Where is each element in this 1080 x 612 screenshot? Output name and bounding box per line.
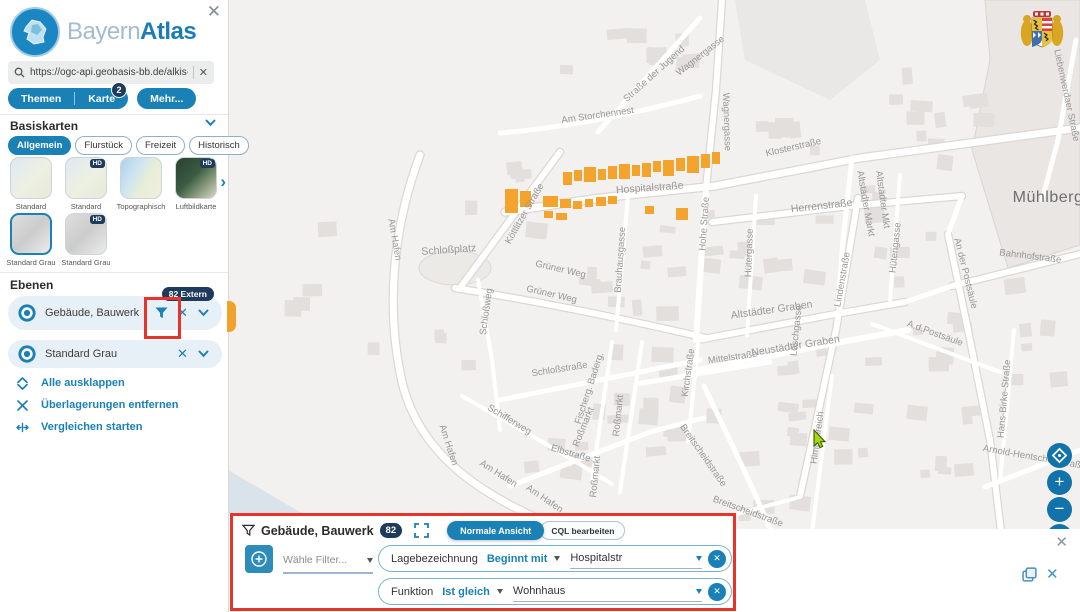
- chevron-down-icon: [198, 350, 209, 358]
- choose-filter-placeholder: Wähle Filter...: [283, 554, 360, 566]
- street-label: Wagnergasse: [720, 93, 733, 152]
- sidebar-close-icon[interactable]: ✕: [207, 2, 221, 22]
- basemap-thumb-standard-grau[interactable]: HDStandard Grau: [63, 213, 109, 267]
- sidebar: ✕ BayernAtlas https://ogc-api.geobasis-b…: [0, 0, 229, 612]
- basemap-chip-freizeit[interactable]: Freizeit: [136, 136, 185, 155]
- minus-icon: −: [1055, 499, 1065, 519]
- remove-overlays-icon: [12, 399, 32, 412]
- search-bar[interactable]: https://ogc-api.geobasis-bb.de/alkis-ver…: [8, 61, 214, 84]
- expand-all-icon: [12, 377, 32, 390]
- expand-brackets-icon: [414, 523, 429, 538]
- sidebar-drawer-handle[interactable]: [227, 301, 236, 332]
- view-toggle: Normale AnsichtCQL bearbeiten: [447, 521, 625, 540]
- filter-rows: LagebezeichnungBeginnt mitHospitalstr✕Fu…: [378, 545, 732, 611]
- basemap-thumb-label: Luftbildkarte: [176, 202, 217, 211]
- toggle-cql-bearbeiten[interactable]: CQL bearbeiten: [540, 521, 625, 540]
- action-compare[interactable]: Vergleichen starten: [12, 416, 179, 438]
- basemap-thumb-image: HD: [175, 157, 217, 199]
- bottom-strip-close-icon[interactable]: ✕: [1055, 533, 1068, 551]
- basemap-chips: AllgemeinFlurstückFreizeitHistorisch: [8, 136, 249, 155]
- basemap-thumb-label: Standard: [16, 202, 46, 211]
- filter-outline-icon: [242, 524, 255, 537]
- filter-row-0: LagebezeichnungBeginnt mitHospitalstr✕: [378, 545, 732, 572]
- chevron-down-icon: [198, 309, 209, 317]
- action-expand-all[interactable]: Alle ausklappen: [12, 372, 179, 394]
- filter-panel-title: Gebäude, Bauwerk: [261, 524, 374, 538]
- search-divider: [193, 66, 194, 79]
- compare-icon: [12, 421, 32, 434]
- plus-icon: +: [1055, 472, 1065, 492]
- filter-operator-dropdown[interactable]: Ist gleich: [442, 586, 490, 598]
- expand-all-icon: [16, 377, 29, 390]
- chevron-down-icon[interactable]: [205, 119, 216, 127]
- compare-close-icon[interactable]: ✕: [1046, 565, 1059, 583]
- basemap-thumb-standard[interactable]: Standard: [8, 157, 54, 211]
- plus-circle-icon: [250, 550, 268, 568]
- filter-value-text: Wohnhaus: [513, 585, 689, 597]
- basiskarten-title: Basiskarten: [10, 119, 78, 133]
- basemap-thumb-luftbildkarte[interactable]: HDLuftbildkarte: [173, 157, 219, 211]
- layer-row-0[interactable]: Gebäude, Bauwerk✕82 Extern: [8, 296, 222, 330]
- bavaria-coat-of-arms: [1020, 6, 1064, 54]
- layer-row-1[interactable]: Standard Grau✕: [8, 340, 222, 368]
- filter-value-dropdown[interactable]: Wohnhaus: [513, 581, 702, 602]
- filter-field-label: Lagebezeichnung: [391, 553, 478, 565]
- layer-label: Gebäude, Bauwerk: [45, 307, 139, 319]
- hd-badge: HD: [200, 159, 215, 168]
- basemap-thumb-label: Standard Grau: [6, 258, 55, 267]
- zoom-in-button[interactable]: +: [1047, 470, 1072, 495]
- basemap-chip-flurstück[interactable]: Flurstück: [75, 136, 132, 155]
- chevron-down-icon: [696, 556, 702, 561]
- basemap-thumb-image: [120, 157, 162, 199]
- filter-remove-button[interactable]: ✕: [708, 583, 726, 601]
- basemap-thumb-image: HD: [65, 157, 107, 199]
- chevron-down-icon: [696, 589, 702, 594]
- filter-field-label: Funktion: [391, 586, 433, 598]
- filter-funnel-icon: [155, 307, 168, 319]
- expand-panel-button[interactable]: [414, 523, 429, 538]
- layer-remove-button[interactable]: ✕: [172, 305, 193, 321]
- layer-actions: Alle ausklappenÜberlagerungen entfernenV…: [12, 372, 179, 438]
- toggle-normale-ansicht[interactable]: Normale Ansicht: [447, 521, 544, 540]
- layer-list: Gebäude, Bauwerk✕82 ExternStandard Grau✕: [8, 296, 222, 368]
- filter-row-1: FunktionIst gleichWohnhaus✕: [378, 578, 732, 605]
- bayernatlas-logo-icon: [10, 7, 60, 57]
- zoom-out-button[interactable]: −: [1047, 497, 1072, 522]
- filter-remove-button[interactable]: ✕: [708, 550, 726, 568]
- app-logo: BayernAtlas: [10, 7, 196, 57]
- choose-filter-dropdown[interactable]: Wähle Filter...: [283, 548, 373, 574]
- basemap-chip-historisch[interactable]: Historisch: [189, 136, 249, 155]
- chevron-down-icon: [497, 589, 503, 594]
- basemap-thumb-label: Standard: [71, 202, 101, 211]
- search-input-value[interactable]: https://ogc-api.geobasis-bb.de/alkis-ver…: [30, 67, 188, 78]
- action-label: Vergleichen starten: [41, 421, 143, 433]
- basemap-thumbnails-row2: Standard GrauHDStandard Grau: [8, 213, 109, 267]
- filter-value-text: Hospitalstr: [570, 552, 689, 564]
- layer-expand-button[interactable]: [193, 309, 214, 317]
- basemap-thumb-standard[interactable]: HDStandard: [63, 157, 109, 211]
- layer-visibility-icon: [18, 304, 36, 322]
- chevron-right-icon[interactable]: ›: [220, 172, 226, 192]
- basemap-thumb-label: Standard Grau: [61, 258, 110, 267]
- chevron-down-icon: [554, 556, 560, 561]
- filter-operator-dropdown[interactable]: Beginnt mit: [487, 553, 548, 565]
- basemap-thumbnails-row1: StandardHDStandardTopographischHDLuftbil…: [8, 157, 219, 211]
- layer-label: Standard Grau: [45, 348, 117, 360]
- hd-badge: HD: [90, 215, 105, 224]
- basemap-thumb-image: [10, 213, 52, 255]
- filter-count-badge: 82: [380, 523, 403, 538]
- filter-panel: Gebäude, Bauwerk 82 Normale AnsichtCQL b…: [228, 513, 736, 612]
- karte-tab-badge: 2: [111, 82, 127, 98]
- layer-expand-button[interactable]: [193, 350, 214, 358]
- add-filter-button[interactable]: [245, 545, 273, 573]
- filter-value-dropdown[interactable]: Hospitalstr: [570, 548, 702, 569]
- remove-overlays-icon: [16, 399, 29, 412]
- brand-wordmark: BayernAtlas: [67, 18, 196, 46]
- search-icon: [14, 67, 25, 78]
- action-label: Überlagerungen entfernen: [41, 399, 179, 411]
- basemap-thumb-image: HD: [65, 213, 107, 255]
- layer-visibility-icon: [18, 345, 36, 363]
- basemap-thumb-topographisch[interactable]: Topographisch: [118, 157, 164, 211]
- basemap-thumb-standard-grau[interactable]: Standard Grau: [8, 213, 54, 267]
- hd-badge: HD: [90, 159, 105, 168]
- place-label: Mühlberg: [1013, 189, 1080, 206]
- geolocate-icon: [1051, 447, 1068, 464]
- action-label: Alle ausklappen: [41, 377, 125, 389]
- action-remove-overlays[interactable]: Überlagerungen entfernen: [12, 394, 179, 416]
- bayernatlas-app: WagnergasseWagnergasseStraße der JugendA…: [0, 0, 1080, 612]
- layer-extern-badge: 82 Extern: [162, 287, 214, 301]
- geolocate-button[interactable]: [1047, 443, 1072, 468]
- compare-icon: [16, 421, 29, 434]
- tab-mehr[interactable]: Mehr...: [137, 88, 196, 109]
- search-clear-icon[interactable]: ✕: [199, 66, 208, 79]
- basemap-thumb-image: [10, 157, 52, 199]
- divider: [0, 114, 228, 115]
- layer-remove-button[interactable]: ✕: [172, 346, 193, 362]
- chevron-down-icon: [367, 558, 373, 563]
- ebenen-title: Ebenen: [10, 278, 53, 292]
- divider: [0, 272, 228, 273]
- street-label: Hütergasse: [743, 228, 756, 277]
- duplicate-window-icon[interactable]: [1022, 567, 1037, 582]
- basemap-thumb-label: Topographisch: [117, 202, 166, 211]
- basemap-chip-allgemein[interactable]: Allgemein: [8, 136, 71, 155]
- layer-filter-button[interactable]: [151, 307, 172, 319]
- main-tabs: ThemenKarte 2 Mehr...: [8, 88, 196, 109]
- tab-themen[interactable]: Themen: [8, 92, 74, 105]
